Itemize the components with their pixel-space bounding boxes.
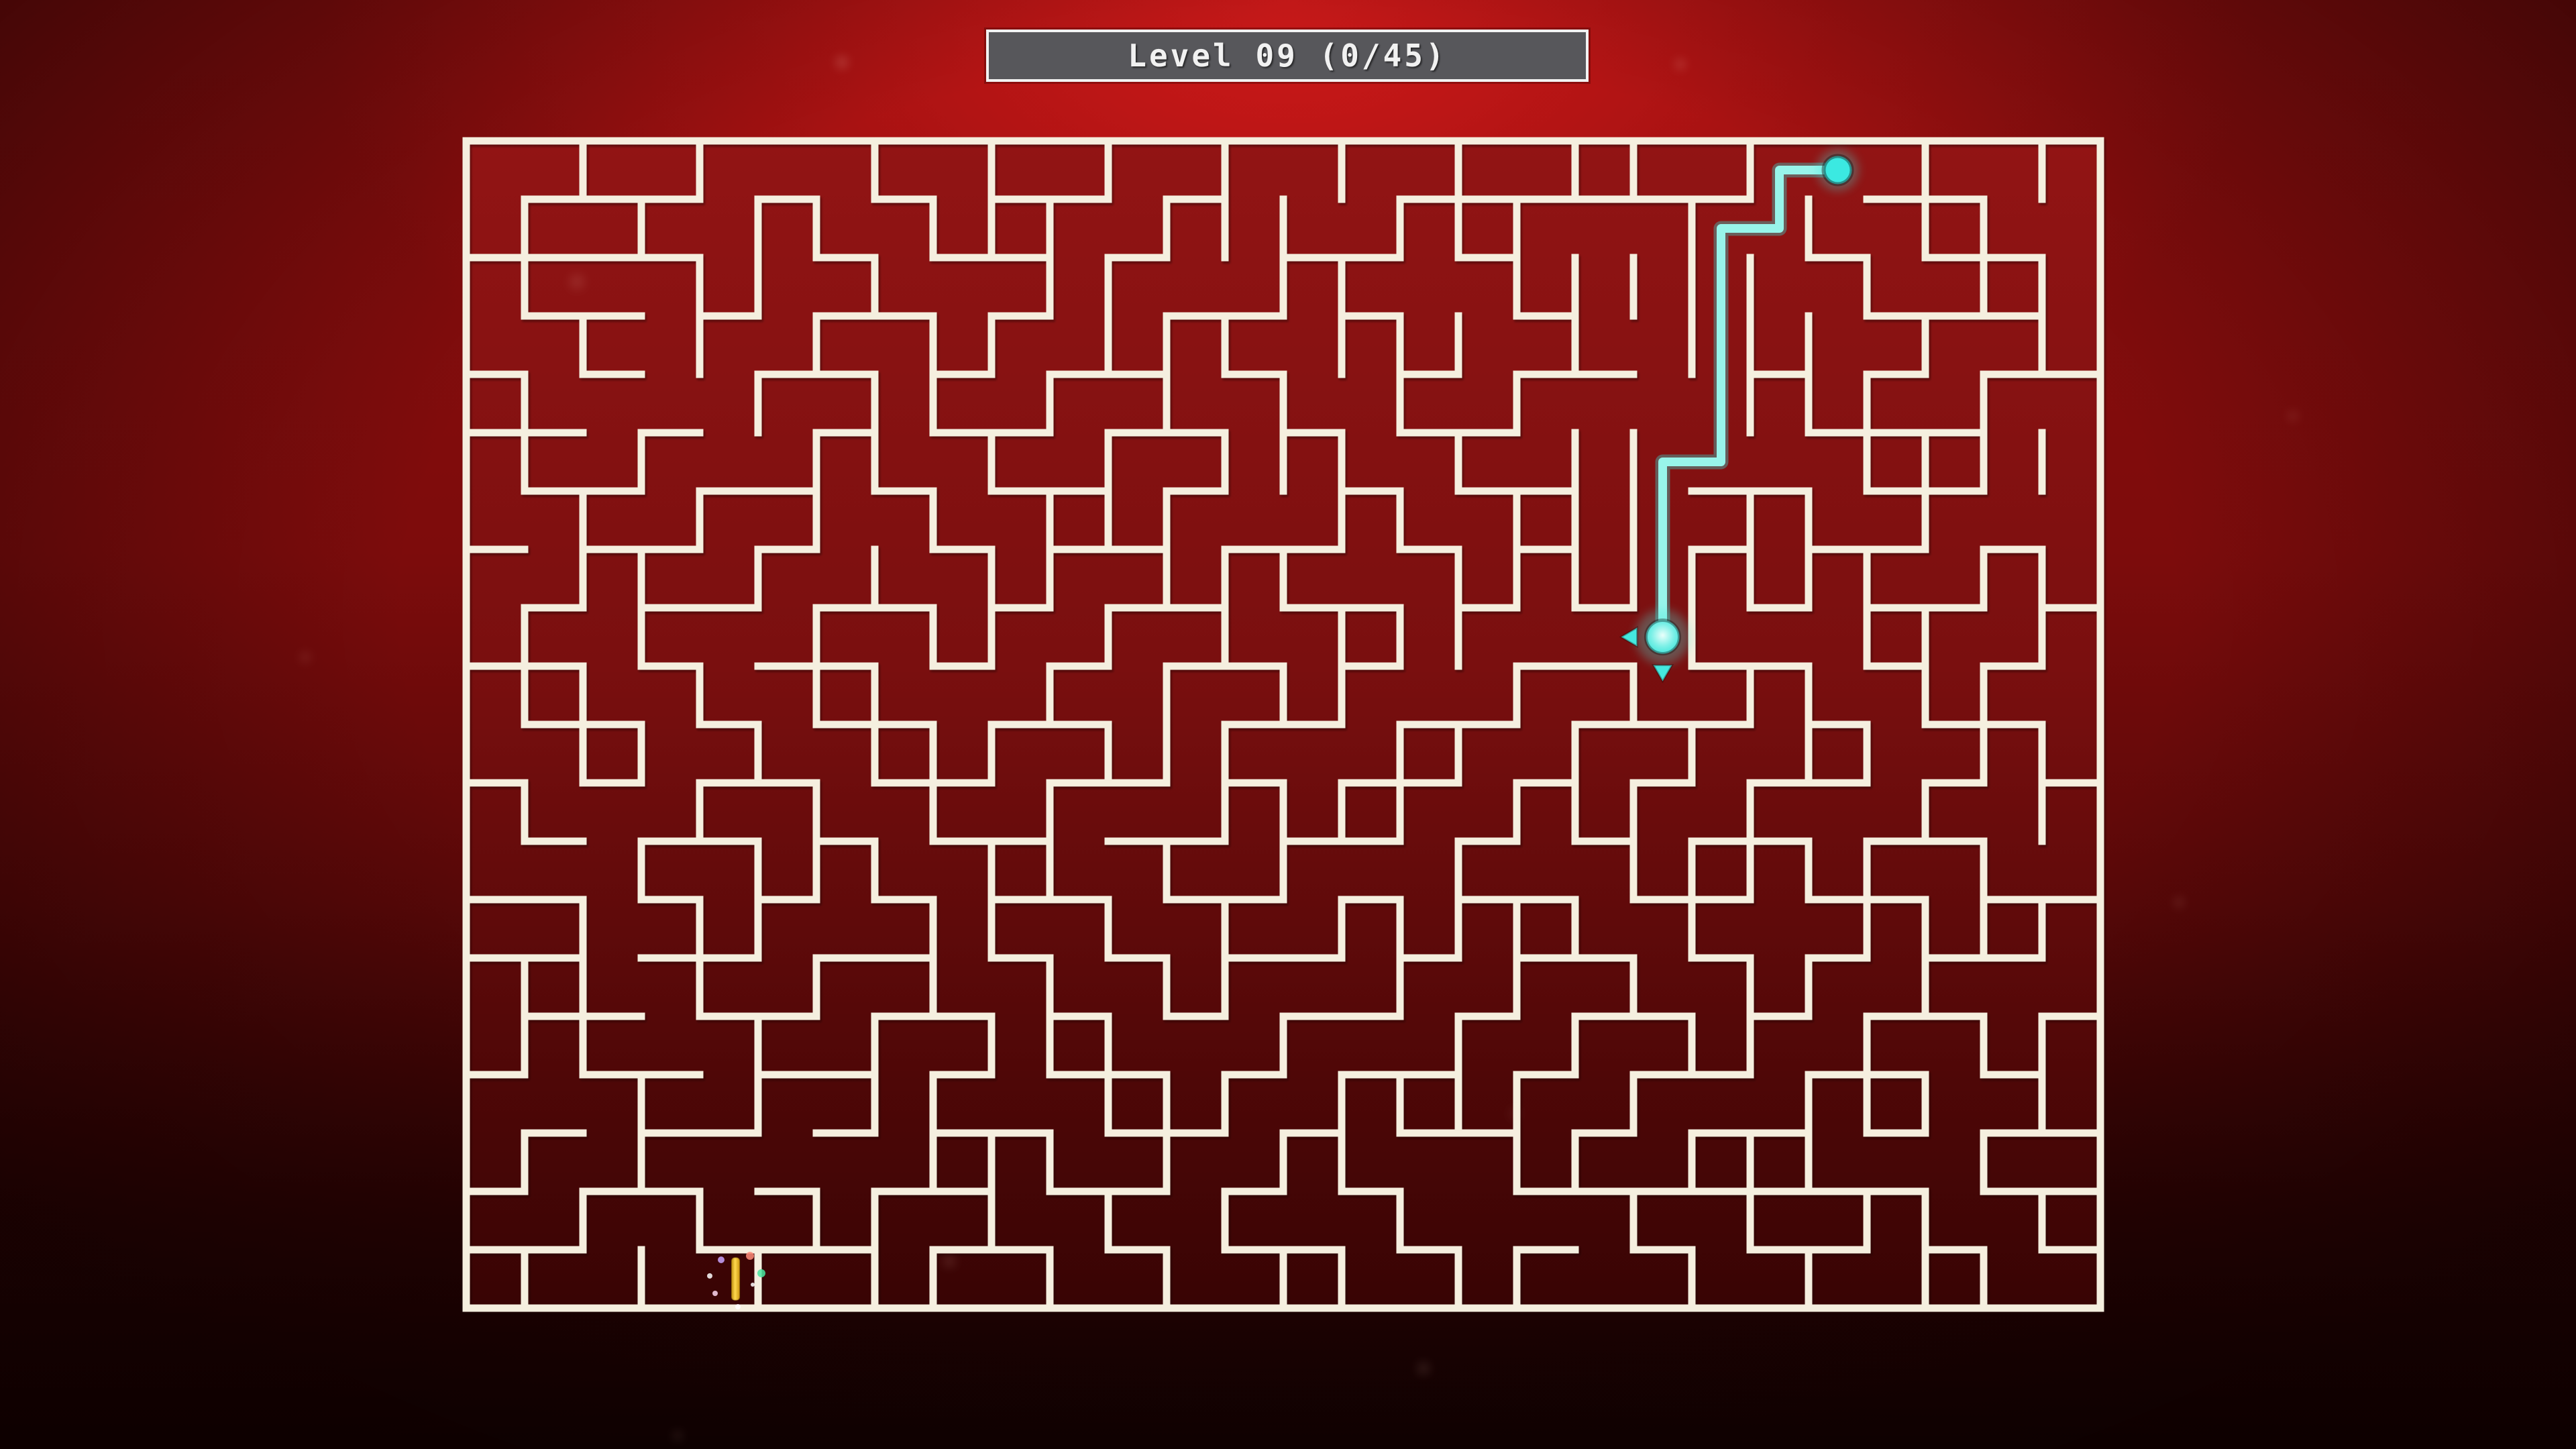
goal-sparkle (746, 1252, 754, 1260)
level-indicator: Level 09 (0/45) (986, 30, 1589, 82)
particle (569, 274, 585, 290)
goal-sparkle (718, 1256, 724, 1263)
goal-sparkle (757, 1269, 765, 1277)
goal-sparkle (712, 1291, 718, 1296)
maze-board[interactable] (0, 0, 2576, 1449)
level-text: Level 09 (0/45) (1128, 38, 1446, 74)
particle (1675, 59, 1686, 70)
player-dot (1646, 621, 1680, 654)
goal-gold-bar (731, 1258, 740, 1301)
particle (835, 56, 849, 69)
particle (1417, 1362, 1430, 1375)
goal-sparkle (735, 1304, 741, 1309)
maze (466, 141, 2100, 1309)
particle (2173, 897, 2184, 908)
particle (299, 651, 311, 663)
particle (1509, 1108, 1520, 1119)
trail-start-dot (1824, 156, 1852, 184)
goal-sparkle (751, 1283, 755, 1287)
particle (673, 1431, 682, 1440)
goal-sparkle (707, 1273, 712, 1279)
particle (2287, 410, 2299, 422)
particle (943, 1255, 955, 1267)
